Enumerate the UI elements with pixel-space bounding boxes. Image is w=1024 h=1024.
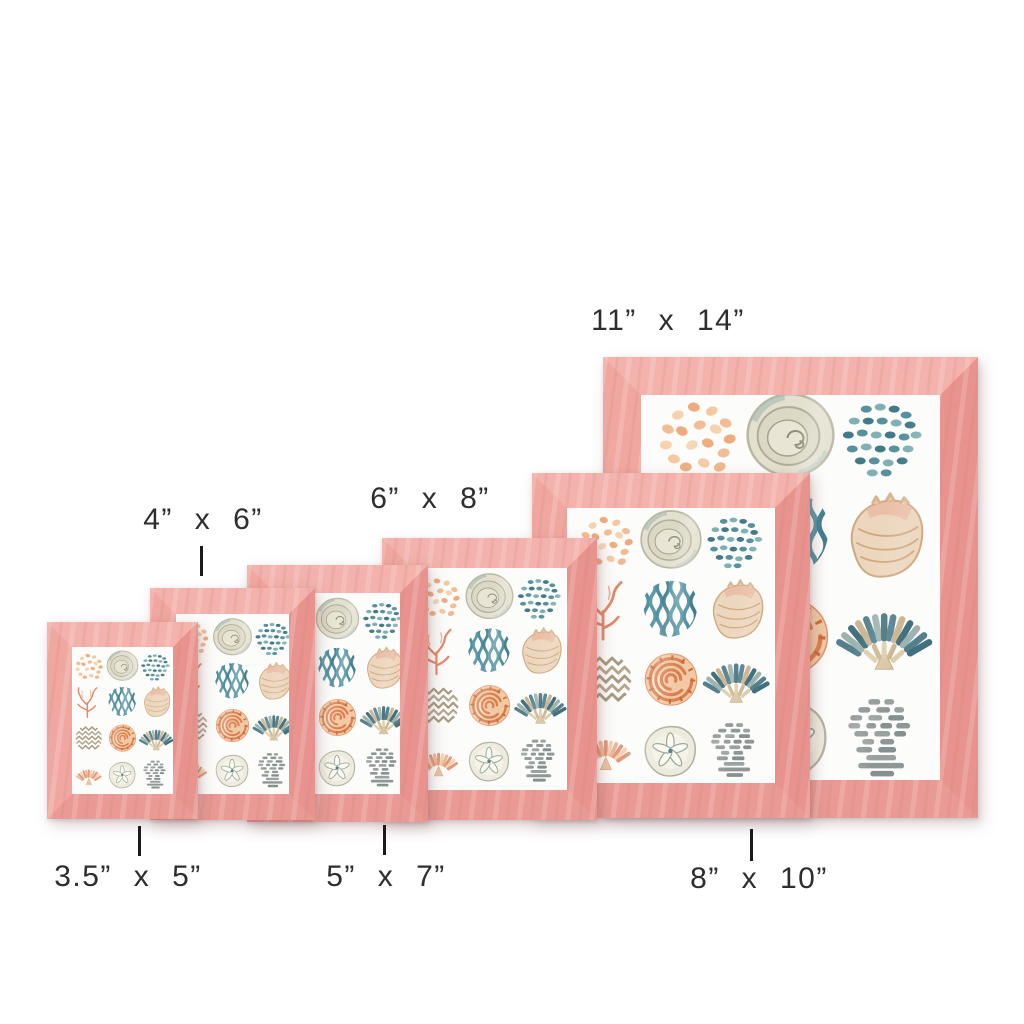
size-label-8x10: 8” x 10” [690, 862, 828, 896]
size-label-11x14: 11” x 14” [591, 304, 745, 338]
pointer-line-4x6 [200, 546, 203, 576]
pointer-line-3.5x5 [138, 826, 141, 856]
frame-3.5x5-mat [72, 647, 173, 794]
artwork-seashell-print [72, 647, 173, 794]
frame-3.5x5 [47, 622, 198, 819]
pointer-line-8x10 [750, 829, 753, 861]
frame-6x8-mat [412, 568, 567, 790]
size-label-4x6: 4” x 6” [143, 503, 263, 537]
artwork-seashell-print [412, 568, 567, 790]
frame-8x10-mat [567, 508, 775, 783]
size-label-6x8: 6” x 8” [370, 482, 490, 516]
size-label-3.5x5: 3.5” x 5” [54, 860, 202, 894]
artwork-seashell-print [567, 508, 775, 783]
size-label-5x7: 5” x 7” [326, 860, 446, 894]
pointer-line-5x7 [383, 825, 386, 855]
product-size-comparison-image: 3.5” x 5” 4” x 6” 5” x 7” 6” x 8” 8” x 1… [0, 0, 1024, 1024]
